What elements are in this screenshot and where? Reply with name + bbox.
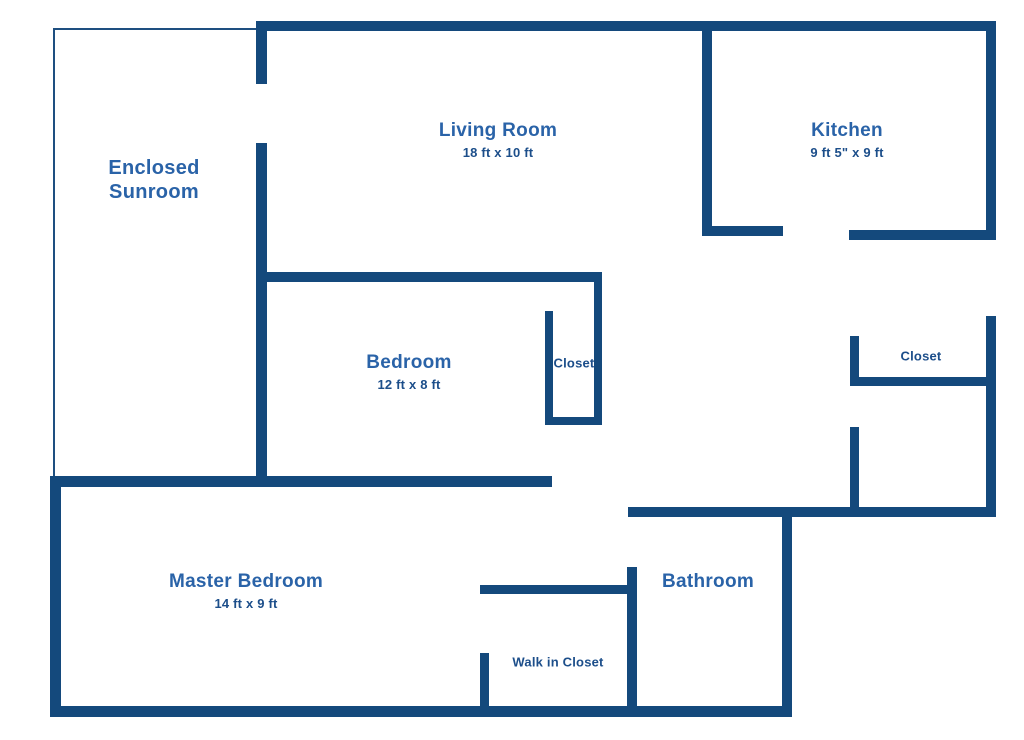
bedroom-closet-name: Closet [554,356,595,371]
wall-hall-closet-bottom [850,377,996,386]
bedroom-closet-label: Closet [554,356,595,371]
walk-in-closet-label: Walk in Closet [512,655,603,670]
living-room-name: Living Room [439,119,557,143]
wall-bathroom-left [627,567,637,706]
wall-right-upper [986,21,996,240]
kitchen-name: Kitchen [811,119,883,143]
wall-walkin-closet-top [480,585,627,594]
wall-bedroom-closet-bottom [545,417,602,425]
wall-bedroom-right [594,282,602,425]
master-bedroom-label: Master Bedroom 14 ft x 9 ft [169,570,323,614]
enclosed-sunroom-name-line2: Sunroom [109,180,199,204]
wall-kitchen-bottom-right [849,230,996,240]
wall-hall-right-vertical [850,427,859,517]
living-room-dims: 18 ft x 10 ft [463,143,534,163]
living-room-label: Living Room 18 ft x 10 ft [439,119,557,163]
wall-master-top [50,476,552,487]
enclosed-sunroom-label: Enclosed Sunroom [108,156,199,204]
wall-kitchen-left [702,31,712,236]
wall-kitchen-bottom-left [702,226,783,236]
wall-hallway-horizontal [628,507,996,517]
wall-master-left-exterior [50,476,61,717]
hall-closet-label: Closet [901,349,942,364]
wall-bedroom-closet-left [545,311,553,425]
wall-partition-lower [256,143,267,487]
sunroom-top-line [53,28,256,30]
walk-in-closet-name: Walk in Closet [512,655,603,670]
wall-top-exterior [256,21,996,31]
wall-walkin-closet-left [480,653,489,706]
bedroom-name: Bedroom [366,351,452,375]
bathroom-name: Bathroom [662,570,754,594]
sunroom-left-line [53,28,55,476]
master-bedroom-dims: 14 ft x 9 ft [214,594,277,614]
wall-bottom-exterior [50,706,792,717]
enclosed-sunroom-name-line1: Enclosed [108,156,199,180]
floor-plan: Enclosed Sunroom Living Room 18 ft x 10 … [0,0,1024,740]
bedroom-label: Bedroom 12 ft x 8 ft [366,351,452,395]
hall-closet-name: Closet [901,349,942,364]
wall-right-lower [986,316,996,517]
wall-bedroom-top [267,272,602,282]
kitchen-dims: 9 ft 5" x 9 ft [810,143,883,163]
master-bedroom-name: Master Bedroom [169,570,323,594]
kitchen-label: Kitchen 9 ft 5" x 9 ft [810,119,883,163]
bathroom-label: Bathroom [662,570,754,594]
wall-bathroom-right [782,517,792,717]
bedroom-dims: 12 ft x 8 ft [377,375,440,395]
wall-partition-upper [256,21,267,84]
